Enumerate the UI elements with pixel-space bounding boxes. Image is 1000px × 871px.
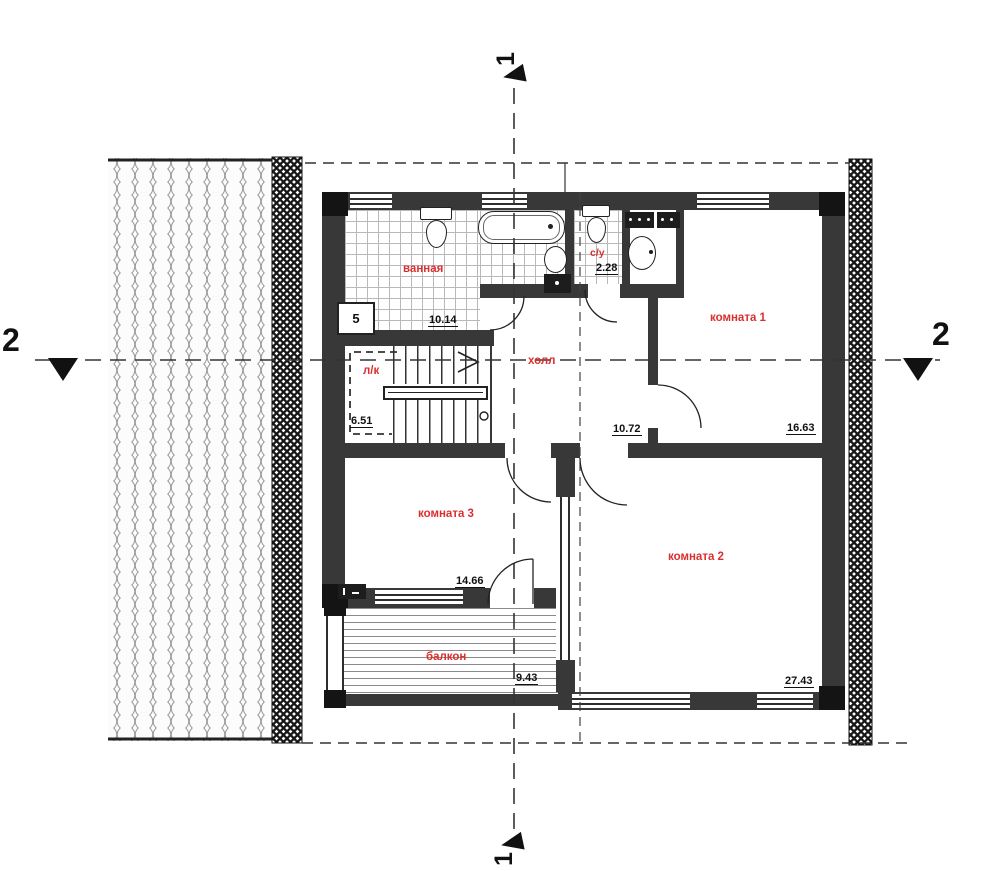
room-label-hall: холл xyxy=(528,355,555,367)
balcony-railing xyxy=(326,612,344,692)
insulation-strip-right xyxy=(849,159,872,745)
door-opening xyxy=(580,443,628,458)
wall xyxy=(648,428,658,443)
balcony-post xyxy=(324,598,346,616)
section-arrow-2-left xyxy=(48,358,78,381)
wall xyxy=(322,192,345,608)
section-mark-2-left: 2 xyxy=(2,322,20,359)
window xyxy=(572,694,690,708)
window xyxy=(697,194,769,208)
room-area-wc: 2.28 xyxy=(595,262,618,275)
stair-treads-upper xyxy=(393,346,488,384)
roof-and-hatch-layer xyxy=(0,0,1000,871)
stair-hall-edge xyxy=(490,346,492,443)
sink xyxy=(544,246,567,273)
wall xyxy=(556,443,575,497)
door-opening xyxy=(490,588,534,608)
room-label-stairs: л/к xyxy=(363,365,379,377)
wall-pier xyxy=(322,192,348,216)
insulation-strip-left xyxy=(272,157,302,743)
wall xyxy=(648,298,658,385)
bathtub xyxy=(478,211,565,244)
room-area-stairs: 6.51 xyxy=(350,415,373,428)
stair-railing xyxy=(383,386,488,400)
section-mark-1-bottom: 1 xyxy=(490,846,516,871)
equipment-tag: 5 xyxy=(337,302,375,335)
roof-shingle-area xyxy=(108,158,270,741)
wall xyxy=(556,660,575,692)
room-area-room2: 27.43 xyxy=(784,675,814,688)
equipment-tag-number: 5 xyxy=(352,311,359,326)
balcony-parapet xyxy=(340,694,558,706)
room-label-wc: с/у xyxy=(590,247,605,259)
window xyxy=(482,194,527,208)
window xyxy=(350,194,392,208)
room-area-room3: 14.66 xyxy=(455,575,485,588)
room-label-balcony: балкон xyxy=(426,651,466,663)
room-area-bathroom: 10.14 xyxy=(428,314,458,327)
room-area-balcony: 9.43 xyxy=(515,672,538,685)
door-opening xyxy=(505,443,551,458)
room-label-bathroom: ванная xyxy=(403,263,443,275)
room-label-room2: комната 2 xyxy=(668,551,724,563)
wall-pier xyxy=(819,686,845,710)
toilet xyxy=(420,207,452,220)
room-label-room1: комната 1 xyxy=(710,312,766,324)
room-label-room3: комната 3 xyxy=(418,508,474,520)
stair-treads-lower xyxy=(393,400,488,443)
glazed-partition xyxy=(556,497,575,660)
window xyxy=(757,694,813,708)
wall xyxy=(620,284,684,298)
balcony-post xyxy=(324,690,346,708)
tap-icon xyxy=(649,250,653,254)
wall xyxy=(480,284,588,298)
section-mark-2-right: 2 xyxy=(932,316,950,353)
room-area-room1: 16.63 xyxy=(786,422,816,435)
wall xyxy=(565,210,574,284)
room-area-hall: 10.72 xyxy=(612,423,642,436)
wall-pier xyxy=(819,192,845,216)
floor-plan: 5 ванная с/у комната 1 холл л/к комната … xyxy=(0,0,1000,871)
section-arrow-2-right xyxy=(903,358,933,381)
window xyxy=(375,590,463,604)
toilet xyxy=(582,205,610,217)
